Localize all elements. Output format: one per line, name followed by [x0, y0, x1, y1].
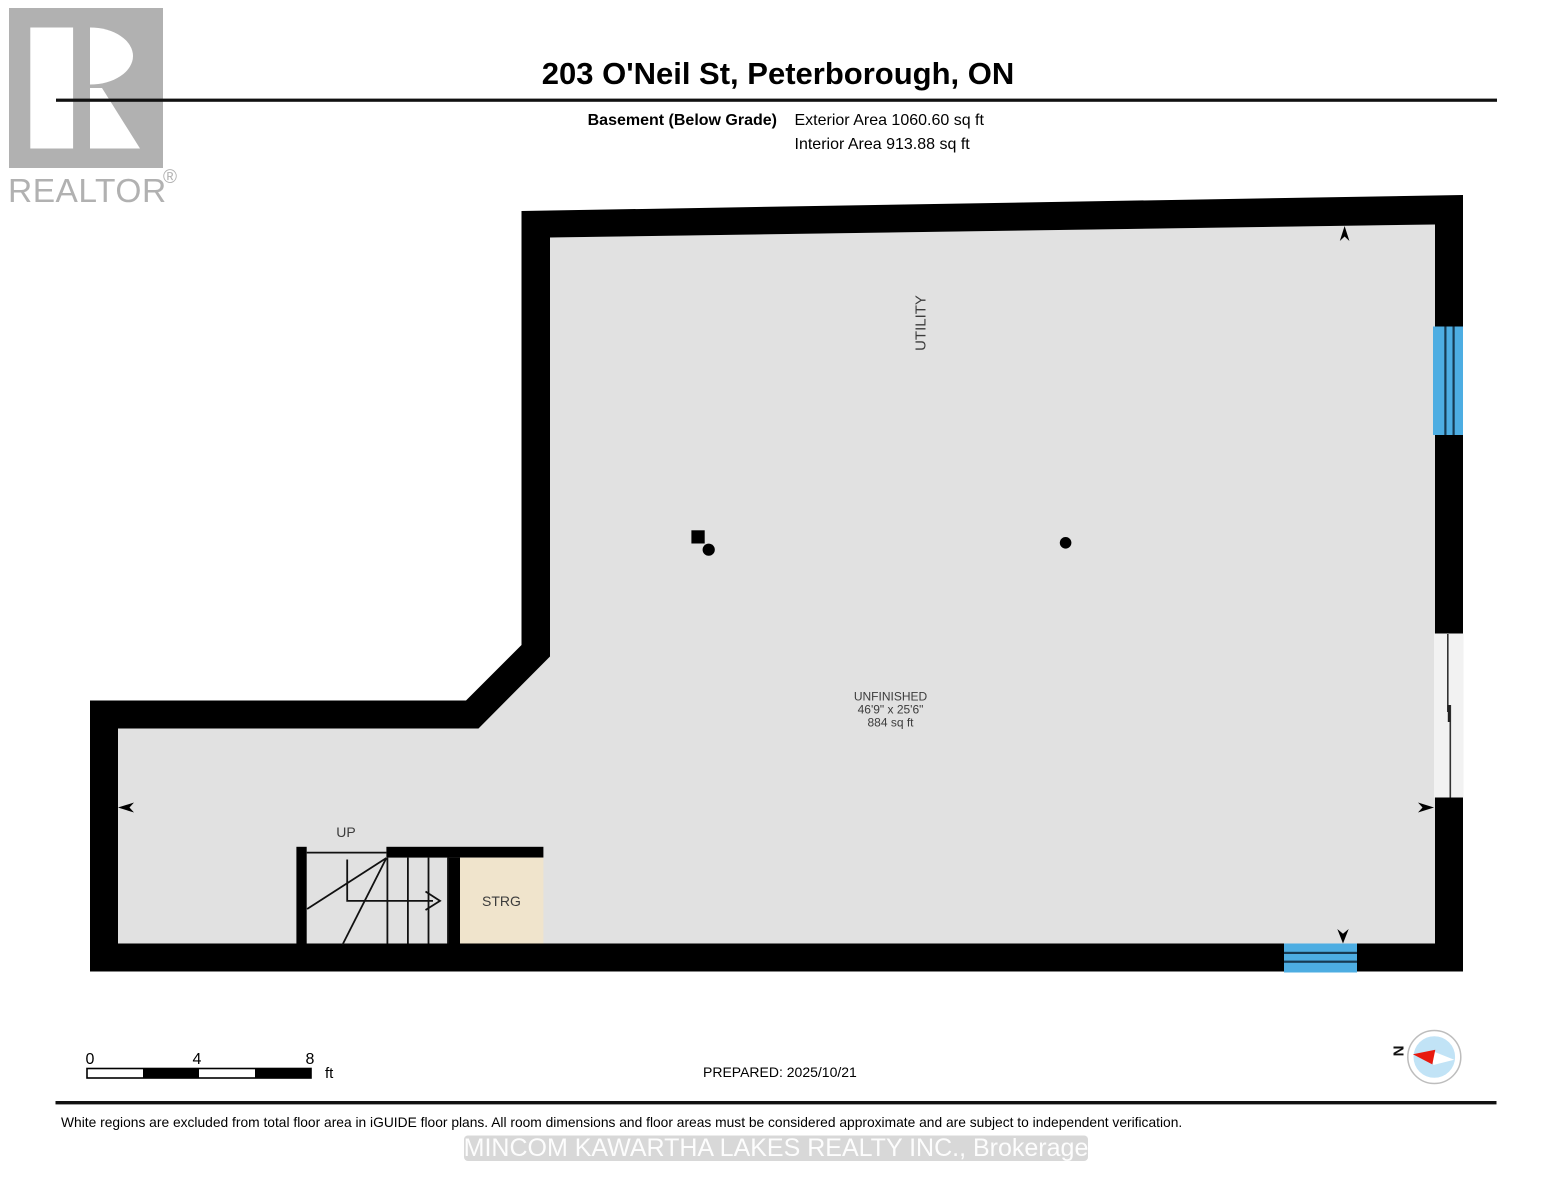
svg-text:4: 4 [193, 1051, 202, 1068]
svg-text:884 sq ft: 884 sq ft [867, 715, 914, 729]
svg-text:®: ® [163, 167, 177, 188]
svg-text:46'9" x 25'6": 46'9" x 25'6" [858, 702, 924, 716]
svg-text:White regions are excluded fro: White regions are excluded from total fl… [61, 1115, 1182, 1130]
svg-text:203 O'Neil St, Peterborough, O: 203 O'Neil St, Peterborough, ON [542, 56, 1014, 91]
svg-text:ft: ft [325, 1065, 334, 1082]
svg-text:UTILITY: UTILITY [913, 295, 930, 351]
svg-text:UP: UP [336, 824, 355, 840]
svg-text:0: 0 [86, 1051, 95, 1068]
svg-text:8: 8 [306, 1051, 315, 1068]
svg-text:Interior Area 913.88 sq ft: Interior Area 913.88 sq ft [795, 136, 971, 153]
svg-text:Exterior Area 1060.60 sq ft: Exterior Area 1060.60 sq ft [795, 112, 985, 129]
svg-text:Basement (Below Grade): Basement (Below Grade) [588, 112, 777, 129]
svg-text:MINCOM KAWARTHA LAKES REALTY I: MINCOM KAWARTHA LAKES REALTY INC., Broke… [464, 1134, 1089, 1162]
svg-text:REALTOR: REALTOR [8, 173, 167, 210]
svg-text:STRG: STRG [482, 893, 521, 909]
svg-text:UNFINISHED: UNFINISHED [854, 689, 928, 703]
svg-text:N: N [1391, 1046, 1408, 1057]
svg-text:PREPARED: 2025/10/21: PREPARED: 2025/10/21 [703, 1064, 857, 1080]
